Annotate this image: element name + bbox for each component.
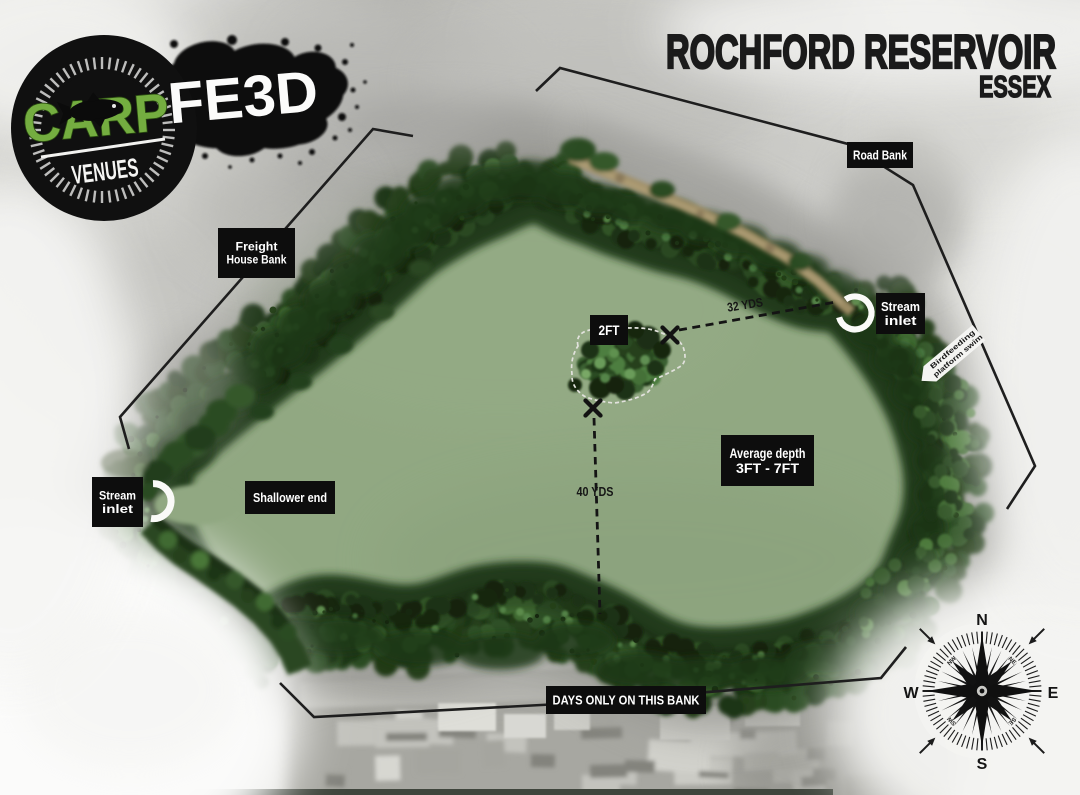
svg-text:2FT: 2FT: [599, 323, 621, 338]
svg-text:N: N: [976, 612, 988, 629]
svg-text:ESSEX: ESSEX: [979, 69, 1051, 104]
svg-text:E: E: [1048, 685, 1059, 702]
svg-text:Average depth: Average depth: [730, 446, 806, 461]
svg-text:inlet: inlet: [102, 502, 133, 516]
svg-text:Freight: Freight: [236, 242, 278, 254]
svg-text:Stream: Stream: [99, 489, 136, 503]
svg-text:DAYS ONLY ON THIS BANK: DAYS ONLY ON THIS BANK: [553, 693, 701, 708]
svg-text:Stream: Stream: [881, 300, 920, 314]
svg-text:40 YDS: 40 YDS: [577, 485, 614, 499]
svg-text:S: S: [977, 756, 988, 773]
svg-text:Road Bank: Road Bank: [853, 149, 907, 163]
svg-text:FE3D: FE3D: [165, 59, 320, 137]
svg-text:3FT - 7FT: 3FT - 7FT: [736, 461, 800, 476]
svg-text:W: W: [903, 685, 919, 702]
svg-text:inlet: inlet: [885, 314, 918, 328]
svg-text:House Bank: House Bank: [227, 255, 288, 267]
svg-text:Shallower end: Shallower end: [253, 490, 327, 505]
